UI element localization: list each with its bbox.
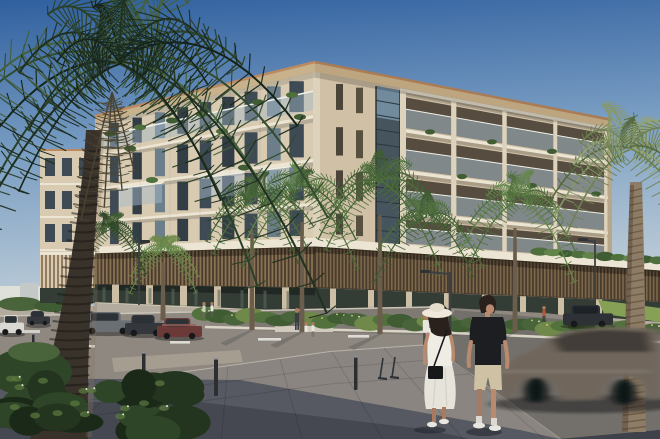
pedestrian bbox=[202, 302, 206, 306]
pedestrian bbox=[295, 308, 300, 313]
flower bbox=[127, 405, 129, 407]
shadow bbox=[414, 427, 446, 434]
lamp-head bbox=[420, 270, 430, 273]
lamp-head bbox=[140, 240, 150, 243]
shrub-highlight bbox=[10, 404, 20, 410]
architectural-rendering bbox=[0, 0, 660, 439]
rooftop-planting bbox=[610, 254, 625, 261]
shrub-highlight bbox=[155, 380, 165, 386]
flower bbox=[21, 384, 23, 386]
woman-shoe bbox=[439, 419, 449, 424]
planter-greenery bbox=[146, 177, 158, 183]
lane-marking bbox=[348, 335, 369, 338]
pedestrian bbox=[210, 302, 213, 305]
flower bbox=[538, 320, 540, 322]
shrub-highlight bbox=[70, 400, 80, 406]
hedge bbox=[8, 342, 60, 362]
man-shoe bbox=[473, 423, 485, 429]
flower bbox=[546, 324, 548, 326]
shrub bbox=[34, 403, 81, 431]
slit-window bbox=[336, 127, 343, 155]
woman-shoe bbox=[427, 422, 437, 428]
street-lamp-right bbox=[594, 240, 596, 300]
storefront-pier bbox=[112, 285, 119, 303]
man-leg bbox=[477, 389, 482, 417]
planter-greenery bbox=[457, 174, 467, 179]
flower bbox=[358, 316, 360, 318]
storefront-pier bbox=[180, 286, 187, 306]
flower bbox=[531, 319, 533, 321]
flower bbox=[122, 413, 124, 415]
pedestrian-orange bbox=[542, 306, 546, 310]
bollard bbox=[354, 356, 358, 390]
scene-canvas bbox=[0, 0, 660, 439]
pedestrian bbox=[311, 322, 314, 325]
moving-car-wheel bbox=[524, 377, 548, 403]
man-arm bbox=[505, 342, 507, 367]
slit-window bbox=[356, 88, 363, 114]
shrub bbox=[122, 369, 157, 403]
flower bbox=[351, 315, 353, 317]
man-shoe bbox=[489, 425, 501, 431]
lane-marking bbox=[258, 338, 281, 341]
sock bbox=[476, 416, 482, 423]
shrub-highlight bbox=[139, 400, 149, 406]
planter-greenery bbox=[487, 139, 497, 144]
crossbody-bag bbox=[428, 366, 443, 379]
lamp-head bbox=[578, 238, 588, 241]
woman-leg bbox=[442, 407, 446, 420]
shrub-highlight bbox=[52, 410, 62, 416]
window bbox=[155, 148, 165, 176]
moving-car-wheel bbox=[612, 379, 636, 405]
planter-greenery bbox=[294, 114, 306, 120]
window bbox=[177, 144, 188, 173]
man-leg bbox=[491, 389, 496, 418]
flower bbox=[93, 387, 95, 389]
flower bbox=[651, 324, 653, 326]
flower bbox=[336, 313, 338, 315]
planter-greenery bbox=[547, 149, 557, 154]
shrub bbox=[161, 383, 204, 407]
planter-greenery bbox=[286, 92, 298, 98]
man-arm bbox=[469, 342, 471, 366]
flower bbox=[87, 411, 89, 413]
pedestrian bbox=[304, 322, 308, 326]
window bbox=[177, 182, 188, 211]
bollard bbox=[214, 358, 218, 396]
woman-leg bbox=[432, 408, 436, 422]
shrub-highlight bbox=[6, 376, 16, 382]
slit-window bbox=[356, 130, 363, 158]
shrub-highlight bbox=[30, 413, 40, 419]
man-tshirt bbox=[470, 317, 507, 367]
flower bbox=[321, 317, 323, 319]
flower bbox=[85, 388, 87, 390]
slit-window bbox=[336, 84, 343, 110]
planter-greenery bbox=[425, 129, 435, 134]
lane-marking bbox=[170, 341, 190, 344]
sock bbox=[491, 418, 497, 425]
street-lamp-far bbox=[138, 242, 140, 305]
flower bbox=[231, 314, 233, 316]
flower bbox=[166, 405, 168, 407]
flower bbox=[19, 376, 21, 378]
shrub-highlight bbox=[38, 378, 48, 384]
slit-window bbox=[356, 215, 363, 236]
